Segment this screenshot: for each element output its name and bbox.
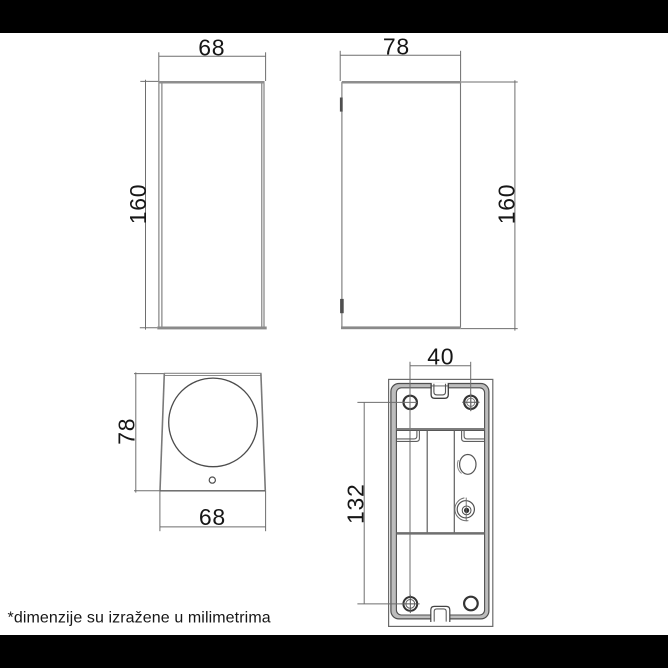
svg-text:78: 78 [383, 34, 410, 60]
svg-text:*dimenzije su izražene u milim: *dimenzije su izražene u milimetrima [8, 610, 271, 627]
svg-text:40: 40 [427, 344, 454, 370]
svg-text:78: 78 [114, 418, 140, 445]
svg-text:160: 160 [125, 184, 151, 224]
svg-text:132: 132 [342, 484, 368, 524]
svg-text:68: 68 [199, 504, 226, 530]
svg-text:68: 68 [198, 34, 225, 60]
svg-text:160: 160 [494, 184, 520, 224]
